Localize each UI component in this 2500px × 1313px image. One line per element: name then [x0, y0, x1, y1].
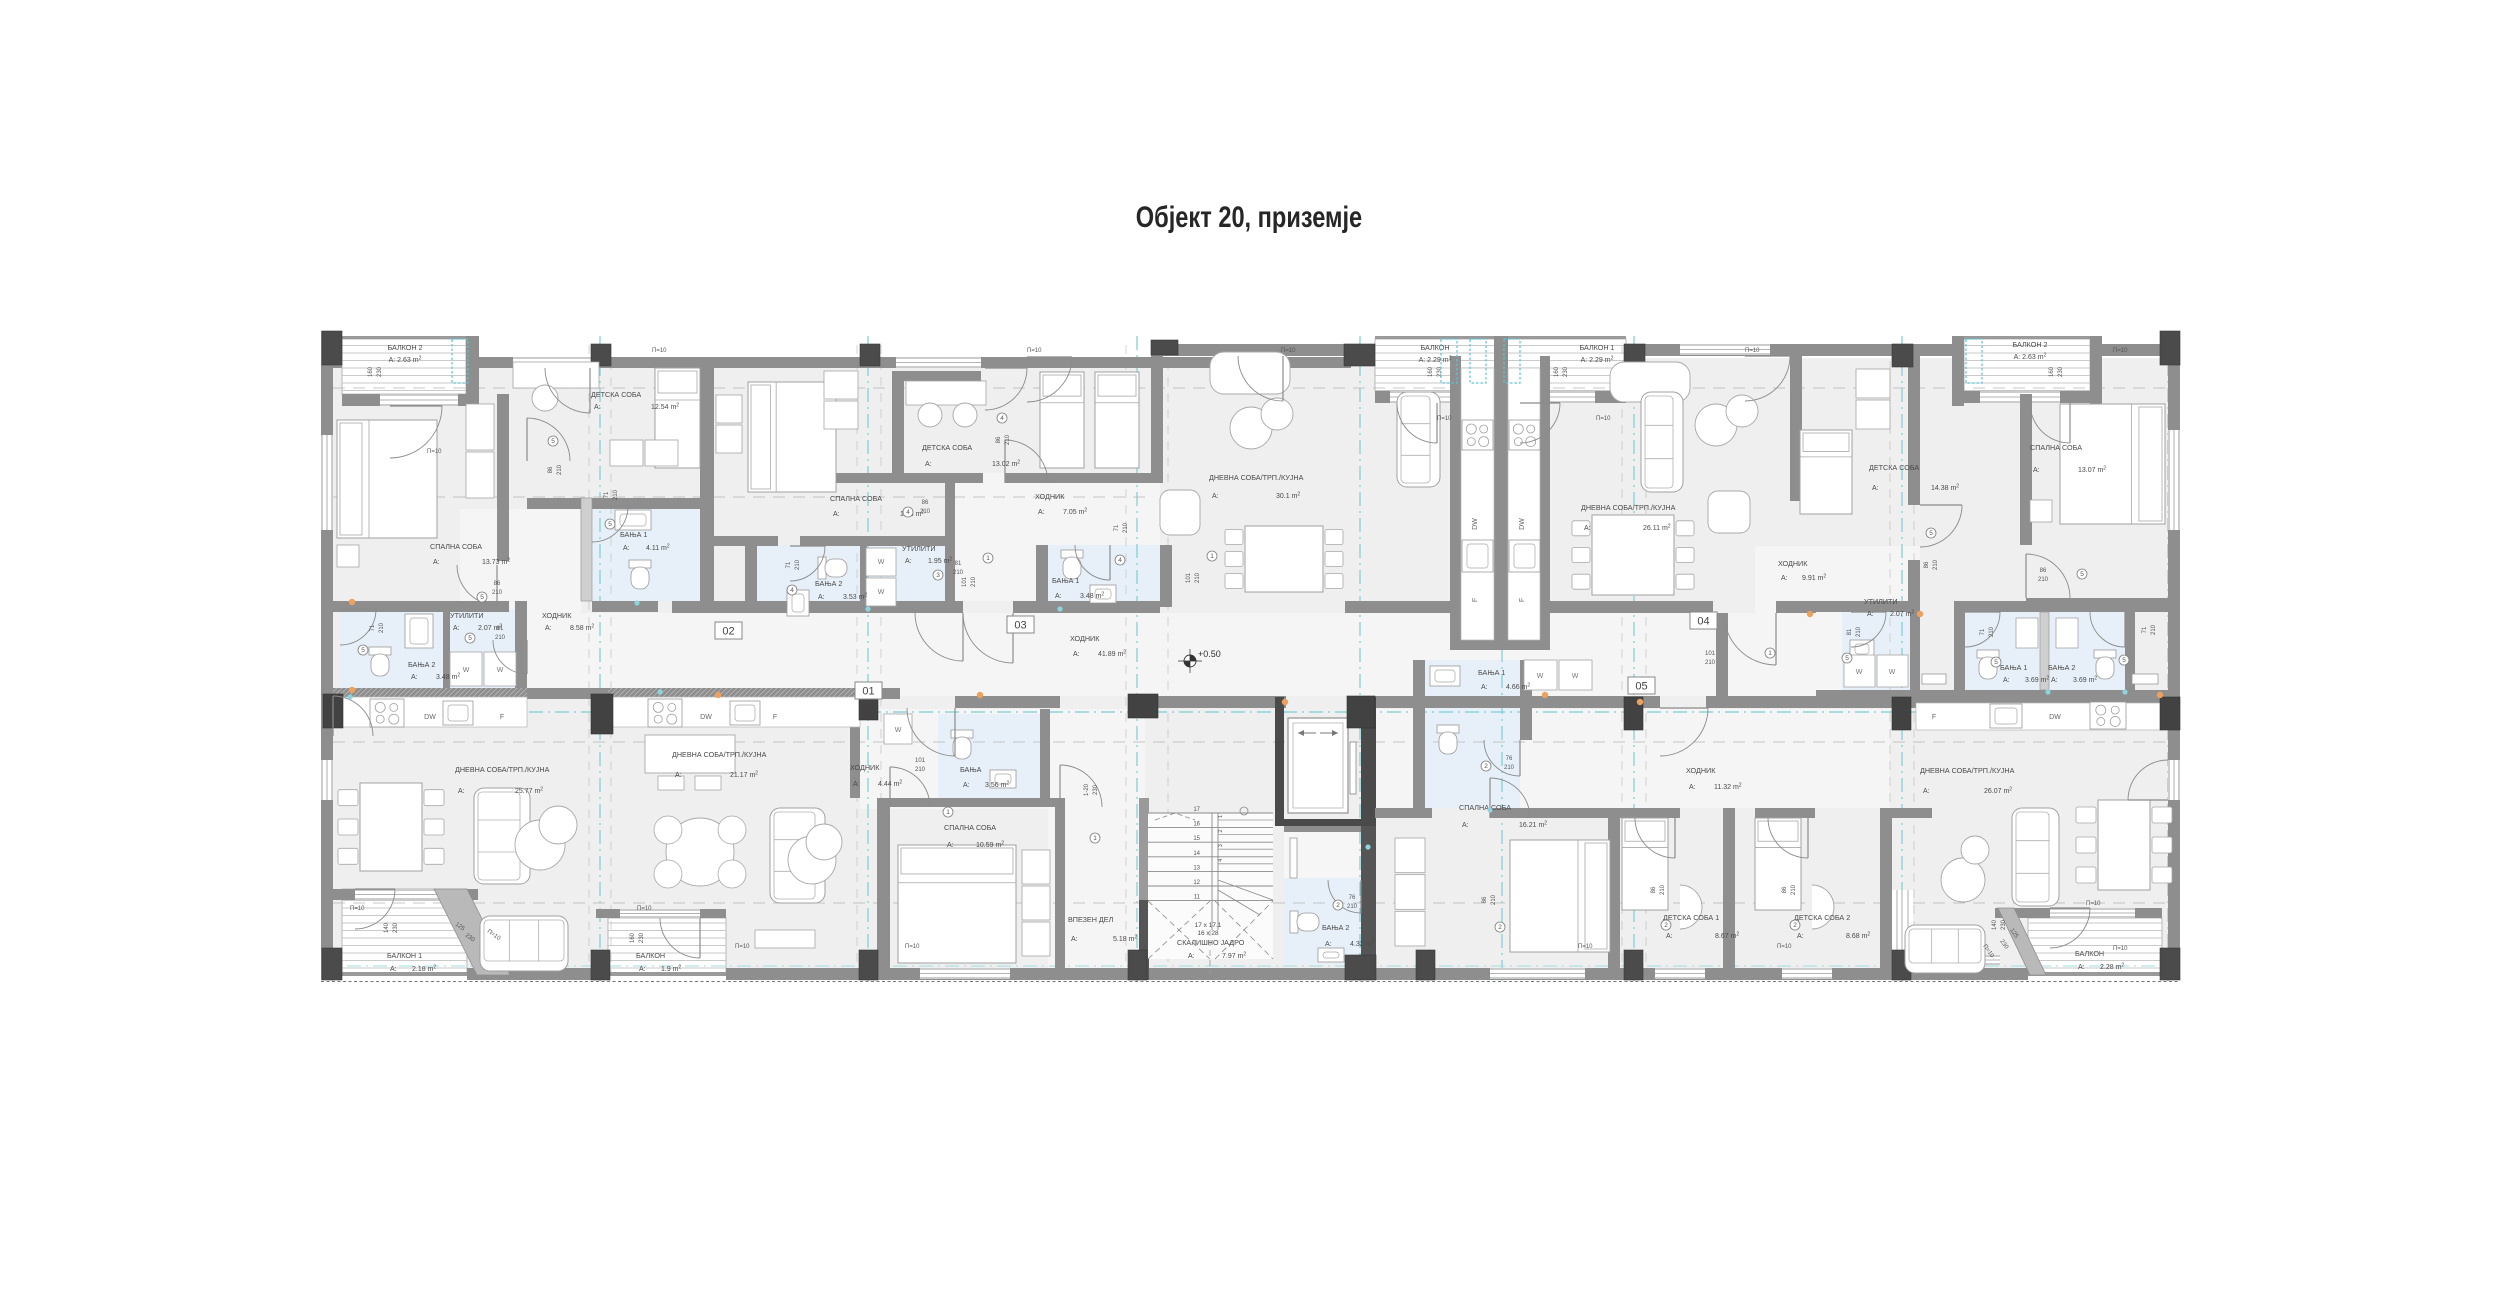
svg-text:5: 5: [608, 521, 612, 528]
svg-text:160: 160: [368, 366, 374, 377]
svg-text:11: 11: [1194, 895, 1201, 901]
svg-text:3.69 m2: 3.69 m2: [2025, 676, 2049, 685]
svg-text:ДНЕВНА СОБА/ТРП./КУЈНА: ДНЕВНА СОБА/ТРП./КУЈНА: [672, 750, 767, 759]
svg-text:05: 05: [1635, 681, 1647, 693]
svg-text:101: 101: [962, 576, 968, 587]
svg-text:ХОДНИК: ХОДНИК: [542, 611, 572, 620]
svg-text:УТИЛИТИ: УТИЛИТИ: [450, 611, 484, 620]
svg-text:ХОДНИК: ХОДНИК: [850, 763, 880, 772]
svg-text:1: 1: [1093, 835, 1097, 842]
svg-text:П=10: П=10: [350, 906, 365, 912]
svg-text:25.77 m2: 25.77 m2: [515, 787, 543, 796]
svg-text:26.07 m2: 26.07 m2: [1984, 787, 2012, 796]
svg-text:210: 210: [492, 590, 503, 596]
svg-text:9.91 m2: 9.91 m2: [1802, 574, 1826, 583]
svg-text:86: 86: [1651, 886, 1657, 893]
svg-text:DW: DW: [700, 714, 712, 721]
svg-text:2: 2: [1484, 763, 1488, 770]
svg-text:86: 86: [1782, 886, 1788, 893]
svg-text:71: 71: [1980, 628, 1986, 635]
svg-text:210: 210: [2038, 577, 2049, 583]
svg-text:БАЛКОН 2: БАЛКОН 2: [387, 343, 422, 352]
svg-text:86: 86: [2040, 568, 2047, 574]
svg-text:A:: A:: [2003, 677, 2010, 684]
svg-text:A:: A:: [1462, 822, 1469, 829]
svg-text:11.32 m2: 11.32 m2: [1714, 783, 1742, 792]
svg-text:ДЕТСКА СОБА 1: ДЕТСКА СОБА 1: [1663, 913, 1719, 922]
svg-text:БАЛКОН 1: БАЛКОН 1: [387, 951, 422, 960]
svg-text:W: W: [895, 727, 902, 734]
svg-text:5: 5: [2080, 571, 2084, 578]
svg-text:БАЛКОН 2: БАЛКОН 2: [2012, 340, 2047, 349]
svg-text:П=10: П=10: [637, 906, 652, 912]
svg-text:БАЊА 1: БАЊА 1: [1052, 576, 1079, 585]
svg-text:П=10: П=10: [1777, 944, 1792, 950]
svg-text:13.73 m2: 13.73 m2: [482, 558, 510, 567]
svg-text:210: 210: [557, 464, 563, 475]
svg-text:160: 160: [630, 932, 636, 943]
svg-text:П=10: П=10: [427, 449, 442, 455]
svg-text:4.44 m2: 4.44 m2: [878, 780, 902, 789]
svg-text:81: 81: [955, 561, 962, 567]
svg-text:4.11 m2: 4.11 m2: [646, 544, 670, 553]
svg-text:A:: A:: [1689, 784, 1696, 791]
svg-text:БАЊА 2: БАЊА 2: [408, 660, 435, 669]
svg-text:A:: A:: [675, 772, 682, 779]
svg-text:2.18 m2: 2.18 m2: [412, 965, 436, 974]
svg-text:2: 2: [1664, 922, 1668, 929]
svg-text:A:: A:: [1797, 933, 1804, 940]
svg-text:210: 210: [1347, 904, 1358, 910]
svg-text:П=10: П=10: [1437, 416, 1452, 422]
svg-text:230: 230: [1563, 366, 1569, 377]
svg-text:8.58 m2: 8.58 m2: [570, 624, 594, 633]
svg-text:Објект 20, приземје: Објект 20, приземје: [1136, 200, 1362, 233]
svg-text:1: 1: [1210, 553, 1214, 560]
svg-text:5: 5: [2122, 657, 2126, 664]
svg-text:86: 86: [922, 500, 929, 506]
svg-text:15: 15: [1193, 836, 1200, 842]
svg-text:3.56 m2: 3.56 m2: [985, 781, 1009, 790]
svg-text:A:: A:: [1867, 611, 1874, 618]
svg-text:160: 160: [1554, 366, 1560, 377]
svg-text:W: W: [1572, 673, 1579, 680]
svg-text:2.28 m2: 2.28 m2: [2100, 963, 2124, 972]
svg-text:210: 210: [613, 489, 619, 500]
svg-text:16 x 28: 16 x 28: [1197, 930, 1219, 937]
svg-text:2: 2: [1336, 902, 1340, 909]
svg-text:210: 210: [1005, 434, 1011, 445]
svg-text:A:: A:: [2078, 964, 2085, 971]
svg-text:17: 17: [1193, 807, 1200, 813]
svg-text:210: 210: [1989, 626, 1995, 637]
svg-text:A:: A:: [1923, 788, 1930, 795]
svg-text:1: 1: [946, 809, 950, 816]
svg-text:П=10: П=10: [2086, 901, 2101, 907]
svg-text:A:: A:: [1071, 936, 1078, 943]
svg-text:СКАЛИШНО ЈАДРО: СКАЛИШНО ЈАДРО: [1177, 938, 1245, 947]
svg-text:01: 01: [862, 686, 874, 698]
svg-text:A:: A:: [1073, 651, 1080, 658]
svg-text:101: 101: [1705, 651, 1716, 657]
svg-text:3.48 m2: 3.48 m2: [1080, 592, 1104, 601]
svg-text:1: 1: [986, 555, 990, 562]
svg-text:2.07 m2: 2.07 m2: [1890, 610, 1914, 619]
svg-text:W: W: [1537, 673, 1544, 680]
svg-text:230: 230: [393, 922, 399, 933]
svg-text:14.38 m2: 14.38 m2: [1931, 484, 1959, 493]
svg-text:П=10: П=10: [735, 944, 750, 950]
svg-text:П=10: П=10: [2113, 946, 2128, 952]
svg-text:A:: A:: [1212, 493, 1219, 500]
svg-text:П=10: П=10: [1578, 944, 1593, 950]
svg-text:A: 2.63 m2: A: 2.63 m2: [2014, 353, 2047, 362]
svg-text:ДНЕВНА СОБА/ТРП./КУЈНА: ДНЕВНА СОБА/ТРП./КУЈНА: [1209, 473, 1304, 482]
svg-text:A: 2.63 m2: A: 2.63 m2: [389, 356, 422, 365]
svg-text:DW: DW: [2049, 714, 2061, 721]
svg-text:W: W: [463, 667, 470, 674]
svg-text:1.9 m2: 1.9 m2: [661, 965, 682, 974]
svg-text:DW: DW: [1519, 518, 1526, 530]
svg-text:A:: A:: [458, 788, 465, 795]
svg-text:86: 86: [494, 581, 501, 587]
svg-text:210: 210: [795, 559, 801, 570]
svg-text:4: 4: [790, 587, 794, 594]
svg-text:ХОДНИК: ХОДНИК: [1070, 634, 1100, 643]
svg-text:5: 5: [1845, 655, 1849, 662]
svg-text:16: 16: [1193, 822, 1200, 828]
svg-text:230: 230: [1093, 784, 1099, 795]
svg-text:ХОДНИК: ХОДНИК: [1778, 559, 1808, 568]
svg-text:210: 210: [1195, 572, 1201, 583]
svg-text:160: 160: [2049, 366, 2055, 377]
svg-text:DW: DW: [1472, 518, 1479, 530]
svg-text:УТИЛИТИ: УТИЛИТИ: [1864, 597, 1898, 606]
svg-text:ДНЕВНА СОБА/ТРП./КУЈНА: ДНЕВНА СОБА/ТРП./КУЈНА: [1581, 503, 1676, 512]
svg-text:13: 13: [1193, 865, 1200, 871]
svg-text:140: 140: [384, 922, 390, 933]
svg-text:210: 210: [1660, 884, 1666, 895]
svg-text:2: 2: [1793, 922, 1797, 929]
svg-text:5: 5: [468, 635, 472, 642]
svg-text:1: 1: [1218, 815, 1224, 818]
svg-text:04: 04: [1697, 616, 1709, 628]
svg-text:A:: A:: [1055, 593, 1062, 600]
svg-text:210: 210: [1933, 559, 1939, 570]
svg-text:БАЛКОН: БАЛКОН: [2075, 949, 2104, 958]
svg-text:4: 4: [1000, 415, 1004, 422]
svg-text:A:: A:: [947, 842, 954, 849]
svg-text:A: 2.29 m2: A: 2.29 m2: [1419, 356, 1452, 365]
svg-text:210: 210: [2151, 624, 2157, 635]
svg-text:3.69 m2: 3.69 m2: [2073, 676, 2097, 685]
svg-text:ДЕТСКА СОБА: ДЕТСКА СОБА: [591, 390, 641, 399]
svg-text:A:: A:: [1188, 953, 1195, 960]
svg-text:F: F: [500, 714, 504, 721]
svg-text:П=10: П=10: [2113, 348, 2128, 354]
svg-text:210: 210: [1491, 894, 1497, 905]
svg-text:БАЊА 2: БАЊА 2: [2048, 663, 2075, 672]
svg-text:A:: A:: [853, 781, 860, 788]
svg-text:П=10: П=10: [1745, 348, 1760, 354]
svg-text:УТИЛИТИ: УТИЛИТИ: [902, 544, 936, 553]
svg-text:ДЕТСКА СОБА 2: ДЕТСКА СОБА 2: [1794, 913, 1850, 922]
svg-text:A:: A:: [1481, 684, 1488, 691]
svg-text:СПАЛНА СОБА: СПАЛНА СОБА: [830, 494, 882, 503]
svg-text:210: 210: [920, 509, 931, 515]
svg-text:БАЊА 1: БАЊА 1: [620, 530, 647, 539]
svg-text:210: 210: [915, 767, 926, 773]
svg-text:СПАЛНА СОБА: СПАЛНА СОБА: [1459, 803, 1511, 812]
svg-text:86: 86: [1924, 561, 1930, 568]
svg-text:210: 210: [1123, 522, 1129, 533]
svg-text:7.05 m2: 7.05 m2: [1063, 508, 1087, 517]
svg-text:П=10: П=10: [905, 944, 920, 950]
svg-text:230: 230: [2001, 919, 2007, 930]
svg-text:БАЊА 2: БАЊА 2: [815, 579, 842, 588]
svg-text:ДНЕВНА СОБА/ТРП./КУЈНА: ДНЕВНА СОБА/ТРП./КУЈНА: [1920, 766, 2015, 775]
svg-text:160: 160: [1428, 366, 1434, 377]
svg-text:1-20: 1-20: [1084, 783, 1090, 796]
svg-text:W: W: [497, 667, 504, 674]
svg-text:A:: A:: [925, 461, 932, 468]
svg-text:A:: A:: [390, 966, 397, 973]
svg-text:A:: A:: [818, 594, 825, 601]
svg-text:ХОДНИК: ХОДНИК: [1686, 766, 1716, 775]
svg-text:A:: A:: [639, 966, 646, 973]
svg-text:210: 210: [1856, 626, 1862, 637]
svg-text:A:: A:: [2033, 467, 2040, 474]
svg-text:СПАЛНА СОБА: СПАЛНА СОБА: [430, 542, 482, 551]
svg-text:A:: A:: [453, 625, 460, 632]
svg-text:W: W: [878, 559, 885, 566]
svg-text:8.67 m2: 8.67 m2: [1715, 932, 1739, 941]
svg-text:W: W: [1889, 669, 1896, 676]
svg-text:П=10: П=10: [1281, 348, 1296, 354]
svg-text:ДЕТСКА СОБА: ДЕТСКА СОБА: [922, 443, 972, 452]
svg-text:A:: A:: [905, 558, 912, 565]
svg-text:5: 5: [1929, 530, 1933, 537]
svg-text:A:: A:: [963, 782, 970, 789]
svg-text:A:: A:: [433, 559, 440, 566]
svg-text:16.21 m2: 16.21 m2: [1519, 821, 1547, 830]
svg-text:БАЊА 1: БАЊА 1: [1478, 668, 1505, 677]
svg-text:ХОДНИК: ХОДНИК: [1035, 492, 1065, 501]
svg-text:71: 71: [2142, 626, 2148, 633]
svg-text:86: 86: [548, 466, 554, 473]
svg-text:БАЛКОН: БАЛКОН: [1420, 343, 1449, 352]
svg-text:8.68 m2: 8.68 m2: [1846, 932, 1870, 941]
svg-text:A:: A:: [594, 404, 601, 411]
svg-text:86: 86: [996, 436, 1002, 443]
svg-text:A:: A:: [2051, 677, 2058, 684]
svg-text:5: 5: [480, 594, 484, 601]
svg-text:F: F: [1472, 598, 1479, 602]
svg-text:71: 71: [604, 491, 610, 498]
svg-text:210: 210: [495, 635, 506, 641]
svg-text:A:: A:: [1781, 575, 1788, 582]
svg-text:210: 210: [379, 622, 385, 633]
svg-text:2: 2: [1218, 830, 1224, 833]
svg-text:A:: A:: [545, 625, 552, 632]
svg-text:12: 12: [1193, 880, 1200, 886]
svg-text:13.07 m2: 13.07 m2: [2078, 466, 2106, 475]
svg-text:03: 03: [1014, 620, 1026, 632]
svg-text:БАЛКОН: БАЛКОН: [636, 951, 665, 960]
svg-text:1: 1: [1768, 650, 1772, 657]
svg-text:140: 140: [1992, 919, 1998, 930]
svg-text:+0.50: +0.50: [1198, 649, 1221, 659]
svg-text:21.17 m2: 21.17 m2: [730, 771, 758, 780]
svg-text:БАЊА: БАЊА: [960, 765, 982, 774]
svg-text:230: 230: [2058, 366, 2064, 377]
svg-text:210: 210: [1791, 884, 1797, 895]
svg-text:71: 71: [1114, 524, 1120, 531]
svg-text:7.97 m2: 7.97 m2: [1222, 952, 1246, 961]
svg-text:3.53 m2: 3.53 m2: [843, 593, 867, 602]
svg-text:СПАЛНА СОБА: СПАЛНА СОБА: [944, 823, 996, 832]
svg-text:12.54 m2: 12.54 m2: [651, 403, 679, 412]
svg-text:230: 230: [377, 366, 383, 377]
svg-text:210: 210: [971, 576, 977, 587]
svg-text:71: 71: [786, 561, 792, 568]
svg-text:ДЕТСКА СОБА: ДЕТСКА СОБА: [1869, 463, 1919, 472]
svg-text:210: 210: [1504, 765, 1515, 771]
svg-text:П=10: П=10: [652, 348, 667, 354]
svg-text:3.48 m2: 3.48 m2: [436, 673, 460, 682]
svg-text:ДНЕВНА СОБА/ТРП./КУЈНА: ДНЕВНА СОБА/ТРП./КУЈНА: [455, 765, 550, 774]
svg-text:30.1 m2: 30.1 m2: [1276, 492, 1300, 501]
svg-text:ВПЕЗЕН ДЕЛ: ВПЕЗЕН ДЕЛ: [1068, 915, 1114, 924]
svg-text:71: 71: [370, 624, 376, 631]
svg-text:4: 4: [1118, 557, 1122, 564]
svg-text:A:: A:: [1584, 525, 1591, 532]
svg-text:26.11 m2: 26.11 m2: [1643, 524, 1671, 533]
svg-text:A:: A:: [1325, 941, 1332, 948]
svg-text:П=10: П=10: [1027, 348, 1042, 354]
svg-text:A:: A:: [1666, 933, 1673, 940]
svg-text:W: W: [1856, 669, 1863, 676]
svg-text:86: 86: [1482, 896, 1488, 903]
svg-text:230: 230: [1437, 366, 1443, 377]
svg-text:A:: A:: [1038, 509, 1045, 516]
svg-text:4: 4: [906, 509, 910, 516]
svg-text:76: 76: [1349, 895, 1356, 901]
svg-text:F: F: [1932, 714, 1936, 721]
svg-text:210: 210: [953, 570, 964, 576]
svg-text:76: 76: [1506, 756, 1513, 762]
svg-text:81: 81: [1847, 628, 1853, 635]
svg-text:БАЛКОН 1: БАЛКОН 1: [1579, 343, 1614, 352]
svg-text:БАЊА 1: БАЊА 1: [2000, 663, 2027, 672]
svg-text:14: 14: [1193, 851, 1200, 857]
svg-text:41.89 m2: 41.89 m2: [1098, 650, 1126, 659]
svg-text:БАЊА 2: БАЊА 2: [1322, 923, 1349, 932]
svg-text:5.18 m2: 5.18 m2: [1113, 935, 1137, 944]
svg-text:W: W: [878, 589, 885, 596]
svg-text:13.02 m2: 13.02 m2: [992, 460, 1020, 469]
svg-text:81: 81: [497, 626, 504, 632]
svg-text:17 x 17.1: 17 x 17.1: [1195, 922, 1222, 929]
svg-text:4.32 m2: 4.32 m2: [1350, 940, 1374, 949]
svg-text:П=10: П=10: [1596, 416, 1611, 422]
svg-text:A:: A:: [623, 545, 630, 552]
svg-text:10.59 m2: 10.59 m2: [976, 841, 1004, 850]
svg-text:2: 2: [1498, 924, 1502, 931]
svg-text:A:: A:: [1872, 485, 1879, 492]
svg-text:3: 3: [1218, 844, 1224, 847]
svg-text:A:: A:: [833, 511, 840, 518]
svg-text:101: 101: [1186, 572, 1192, 583]
svg-text:4: 4: [1218, 859, 1224, 862]
svg-text:5: 5: [1994, 659, 1998, 666]
svg-text:101: 101: [915, 758, 926, 764]
svg-text:5: 5: [361, 647, 365, 654]
svg-text:230: 230: [639, 932, 645, 943]
svg-text:5: 5: [551, 438, 555, 445]
svg-text:F: F: [1519, 598, 1526, 602]
svg-text:A:: A:: [411, 674, 418, 681]
svg-text:02: 02: [722, 626, 734, 638]
svg-text:DW: DW: [424, 714, 436, 721]
svg-text:1.95 m2: 1.95 m2: [928, 557, 952, 566]
svg-text:4.66 m2: 4.66 m2: [1506, 683, 1530, 692]
svg-text:F: F: [773, 714, 777, 721]
svg-text:210: 210: [1705, 660, 1716, 666]
svg-text:A: 2.29 m2: A: 2.29 m2: [1581, 356, 1614, 365]
svg-text:СПАЛНА СОБА: СПАЛНА СОБА: [2030, 443, 2082, 452]
svg-text:3: 3: [936, 572, 940, 579]
